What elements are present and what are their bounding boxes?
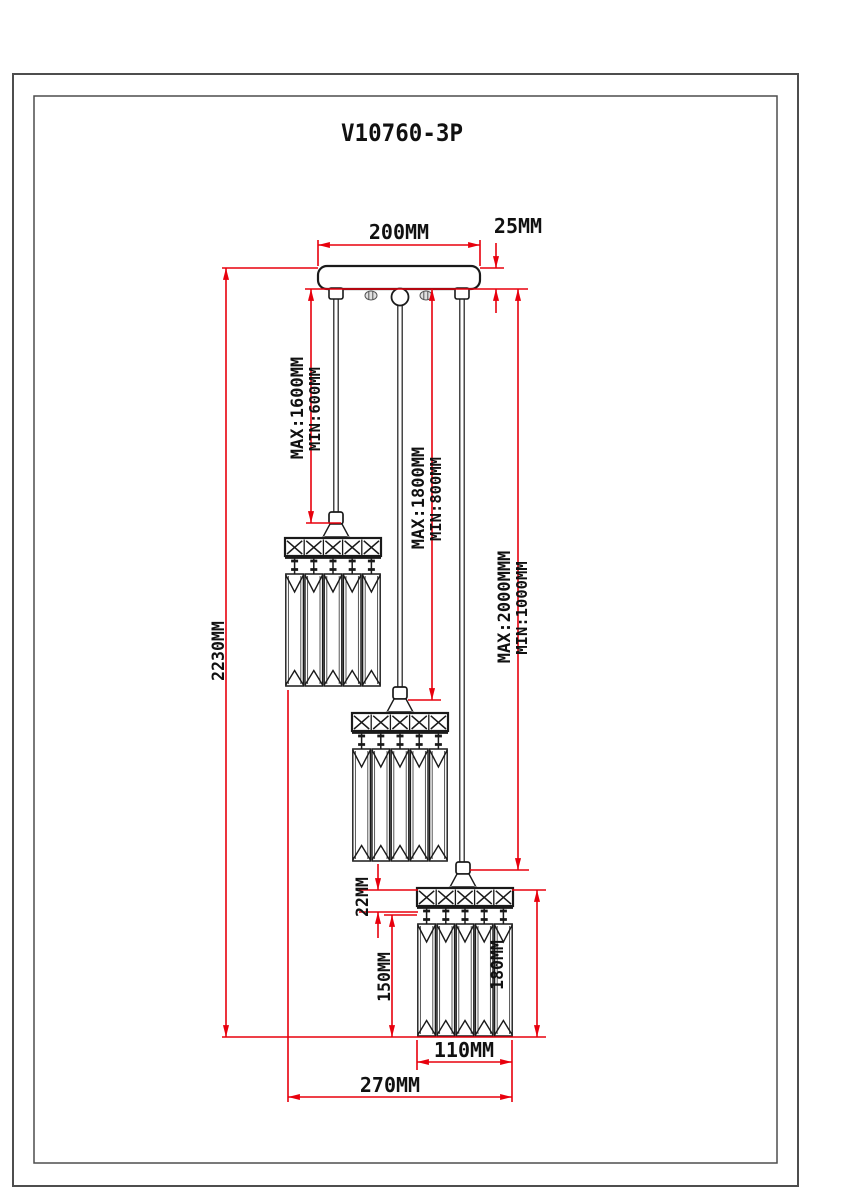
cord-1 <box>334 299 338 512</box>
label-cord1-min: MIN:600MM <box>306 367 324 451</box>
pendant-shade-1 <box>285 538 381 686</box>
drawing-sheet: V10760-3P 200MM <box>0 0 848 1200</box>
label-overall-width: 270MM <box>360 1073 420 1097</box>
label-cord1-max: MAX:1600MM <box>288 357 308 459</box>
shade-cap-1 <box>316 512 356 540</box>
cord-2 <box>398 305 402 687</box>
technical-drawing: V10760-3P 200MM <box>0 0 848 1200</box>
screw-icon <box>365 291 377 300</box>
shade-cap-3 <box>443 862 483 890</box>
label-cord3-max: MAX:2000MMM <box>495 551 515 664</box>
label-shade-width: 110MM <box>434 1038 494 1062</box>
label-crystal-height: 150MM <box>375 952 394 1002</box>
label-overall-height: 2230MM <box>209 621 228 681</box>
label-canopy-width: 200MM <box>369 220 429 244</box>
label-cord2-min: MIN:800MM <box>427 457 445 541</box>
label-cord3-min: MIN:1000MM <box>513 561 531 654</box>
pendant-shade-2 <box>352 713 448 861</box>
shade-cap-2 <box>380 687 420 715</box>
label-canopy-height: 25MM <box>494 214 542 238</box>
cord-grip-center <box>392 289 409 306</box>
ceiling-canopy <box>318 266 480 306</box>
label-cord2-max: MAX:1800MM <box>409 447 429 549</box>
label-band-height: 22MM <box>353 877 372 917</box>
page-title: V10760-3P <box>341 119 463 147</box>
screw-icon <box>420 291 432 300</box>
label-shade-height: 180MM <box>488 940 507 990</box>
cord-3 <box>460 299 464 862</box>
